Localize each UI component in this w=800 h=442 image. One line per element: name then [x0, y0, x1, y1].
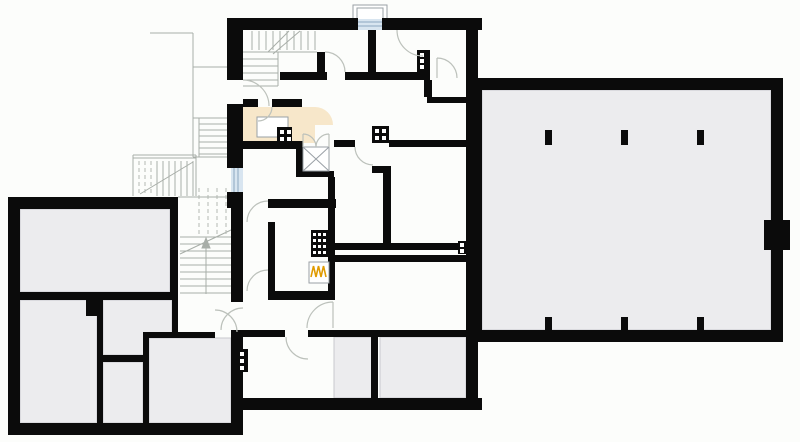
- flue-vent-dot: [323, 251, 326, 254]
- flue-vent-dot: [375, 129, 379, 133]
- wall-main-top-left: [227, 18, 358, 30]
- wall-main-left-a: [227, 18, 243, 80]
- flue-vent-dot: [313, 233, 316, 236]
- flue-vent-dot: [318, 239, 321, 242]
- flue-vent-dot: [318, 233, 321, 236]
- flue-vent-dot: [420, 59, 424, 63]
- wall-int-storage-divider: [371, 337, 378, 398]
- wall-int-h330-b: [308, 330, 466, 337]
- flue-vent-dot: [287, 130, 291, 134]
- wall-main-left-b: [227, 104, 243, 168]
- wall-main-left-c: [227, 192, 243, 208]
- flue-vent-dot: [318, 251, 321, 254]
- flue-vent-dot: [280, 130, 284, 134]
- ventilation-shaft: [303, 147, 329, 171]
- flue-vent-dot: [460, 249, 464, 253]
- flue-vent-dot: [323, 233, 326, 236]
- window-well-outer: [353, 5, 387, 20]
- wall-annex-vert-stair: [172, 300, 178, 338]
- wall-int-v268: [268, 222, 275, 291]
- wall-annex-mid-horizontal: [20, 292, 178, 300]
- wall-int-h199: [268, 199, 336, 208]
- wall-int-h255: [332, 255, 467, 262]
- flue-vent-dot: [313, 245, 316, 248]
- flue-vent-dot: [280, 137, 284, 141]
- wall-main-right-b: [466, 78, 482, 342]
- column-pier: [545, 317, 552, 332]
- wall-annex-vert-right: [143, 332, 149, 423]
- window-top-glass: [358, 19, 382, 30]
- room-right-wing-hall: [482, 90, 771, 330]
- flue-vent-dot: [382, 136, 386, 140]
- column-pier: [545, 130, 552, 145]
- flue-vent-dot: [460, 243, 464, 247]
- wall-int-h243: [328, 243, 466, 250]
- flue-vent-dot: [240, 359, 244, 363]
- column-pier: [697, 317, 704, 332]
- flue-vent-dot: [323, 239, 326, 242]
- wall-int-v383: [383, 166, 391, 250]
- wall-annex-stub: [86, 300, 97, 316]
- wall-door-leaf-stub: [317, 52, 325, 72]
- flue-vent-dot: [323, 245, 326, 248]
- wall-int-h72-a: [280, 72, 327, 80]
- room-annex-large: [20, 209, 170, 292]
- wall-rightwing-right: [771, 78, 783, 342]
- wall-rightwing-top: [482, 78, 783, 90]
- wall-annex-low-horizontal: [97, 355, 149, 362]
- wall-annex-left: [8, 197, 20, 435]
- wall-shaft-bottom: [296, 171, 334, 177]
- wall-int-h330-a: [243, 330, 285, 337]
- wall-main-right-a: [466, 18, 478, 78]
- wall-main-bottom: [243, 398, 482, 410]
- wall-int-v368: [368, 30, 376, 72]
- wall-annex-stair-side: [170, 207, 178, 300]
- wall-main-right-c: [466, 342, 478, 410]
- wall-int-stub372: [372, 166, 383, 173]
- column-pier: [621, 130, 628, 145]
- wall-int-h140-a: [334, 140, 355, 147]
- wall-rightwing-chimney-block: [764, 220, 790, 250]
- floor-plan-svg: [0, 0, 800, 442]
- wall-main-left-e: [231, 330, 243, 423]
- room-annex-bottom-right: [149, 338, 231, 423]
- flue-vent-dot: [313, 239, 316, 242]
- column-pier: [621, 317, 628, 332]
- wall-int-stub424: [424, 80, 432, 97]
- room-annex-left: [20, 300, 97, 423]
- wall-int-h140-b: [389, 140, 466, 147]
- chimney-flue-icon: [372, 126, 389, 143]
- flue-vent-dot: [318, 245, 321, 248]
- floor-plan-canvas: [0, 0, 800, 442]
- flue-vent-dot: [240, 352, 244, 356]
- flue-vent-dot: [375, 136, 379, 140]
- flue-vent-dot: [240, 366, 244, 370]
- window-left-glass: [231, 168, 243, 192]
- heater: [309, 262, 329, 283]
- flue-vent-dot: [287, 137, 291, 141]
- wall-main-left-d: [231, 208, 243, 302]
- wall-int-h291: [268, 291, 335, 300]
- wall-beige-top-a: [243, 99, 258, 107]
- room-annex-small: [103, 362, 143, 423]
- wall-beige-top-b: [272, 99, 302, 107]
- room-main-storage-right: [380, 337, 466, 398]
- wall-annex-bottom: [8, 423, 243, 435]
- wall-annex-top: [8, 197, 178, 209]
- column-pier: [697, 130, 704, 145]
- flue-vent-dot: [313, 251, 316, 254]
- wall-annex-room-top: [143, 332, 215, 338]
- flue-vent-dot: [382, 129, 386, 133]
- window-well: [353, 5, 387, 20]
- wall-int-h97: [427, 97, 466, 103]
- wall-beige-bottom: [231, 141, 303, 149]
- flue-vent-dot: [420, 65, 424, 69]
- room-main-storage-left: [334, 337, 372, 398]
